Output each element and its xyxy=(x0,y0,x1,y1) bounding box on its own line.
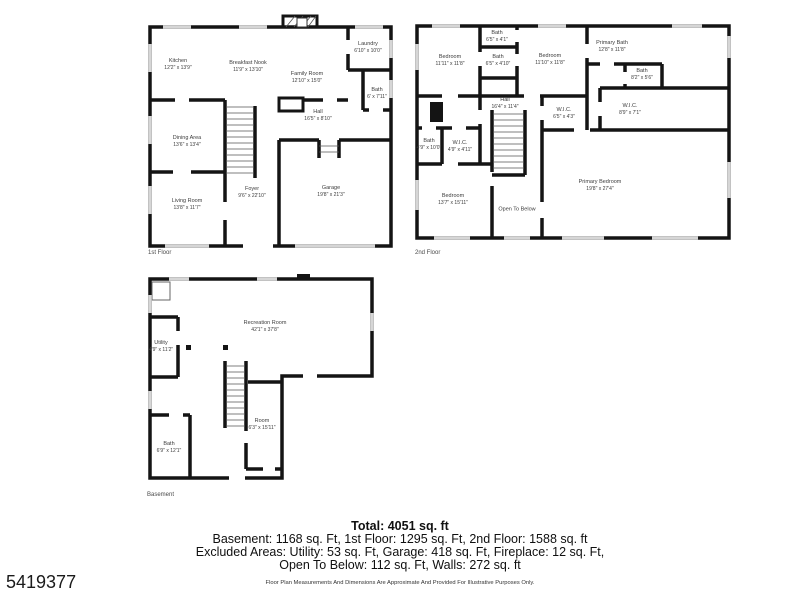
room-label-bath-right: Bath 8'2" x 5'6" xyxy=(631,68,653,82)
room-label-family-room: Family Room 12'10" x 15'0" xyxy=(291,71,323,85)
room-label-bath-basement: Bath 6'9" x 12'1" xyxy=(157,441,182,455)
second-floor-plan: Bedroom 11'11" x 11'8" Bath 6'5" x 4'1" … xyxy=(412,14,734,260)
room-label-recreation-room: Recreation Room 42'1" x 37'8" xyxy=(244,320,287,334)
room-label-garage: Garage 19'8" x 21'3" xyxy=(317,185,344,199)
room-label-foyer: Foyer 9'6" x 22'10" xyxy=(238,186,265,200)
basement-plan: Recreation Room 42'1" x 37'8" Utility 4'… xyxy=(145,273,393,501)
excluded-areas-line-2: Open To Below: 112 sq. Ft, Walls: 272 sq… xyxy=(0,559,800,572)
area-summary: Total: 4051 sq. ft Basement: 1168 sq. Ft… xyxy=(0,520,800,586)
room-label-open-to-below: Open To Below xyxy=(498,206,535,213)
room-label-laundry: Laundry 6'10" x 10'0" xyxy=(354,41,381,55)
second-floor-tag: 2nd Floor xyxy=(415,250,440,256)
room-label-room: Room 6'3" x 15'11" xyxy=(248,418,275,432)
room-label-bedroom-top-mid: Bedroom 11'10" x 11'8" xyxy=(535,53,564,67)
first-floor-tag: 1st Floor xyxy=(148,250,171,256)
room-label-hall-2nd: Hall 16'4" x 11'4" xyxy=(491,97,518,111)
basement-walls xyxy=(145,273,393,501)
room-label-kitchen: Kitchen 12'2" x 13'9" xyxy=(164,58,191,72)
floor-plan-page: Kitchen 12'2" x 13'9" Breakfast Nook 11'… xyxy=(0,0,800,600)
room-label-wic-left: W.I.C. 4'9" x 4'11" xyxy=(448,140,472,154)
room-label-living-room: Living Room 13'8" x 11'7" xyxy=(172,198,203,212)
basement-floor-tag: Basement xyxy=(147,492,174,498)
room-label-bath-left: Bath 4'9" x 10'0" xyxy=(417,138,442,152)
room-label-dining-area: Dining Area 13'6" x 13'4" xyxy=(173,135,201,149)
room-label-bath-top: Bath 6'5" x 4'1" xyxy=(486,30,508,44)
second-floor-walls xyxy=(412,14,734,260)
room-label-bedroom-top-left: Bedroom 11'11" x 11'8" xyxy=(435,54,464,68)
listing-id: 5419377 xyxy=(6,572,76,593)
first-floor-plan: Kitchen 12'2" x 13'9" Breakfast Nook 11'… xyxy=(145,10,397,262)
room-label-primary-bedroom: Primary Bedroom 19'8" x 27'4" xyxy=(579,179,622,193)
room-label-wic-small: W.I.C. 6'5" x 4'3" xyxy=(553,107,575,121)
room-label-bath-1st: Bath 6' x 7'11" xyxy=(367,87,387,101)
disclaimer-text: Floor Plan Measurements And Dimensions A… xyxy=(0,580,800,586)
room-label-primary-bath: Primary Bath 12'8" x 11'8" xyxy=(596,40,628,54)
room-label-breakfast-nook: Breakfast Nook 11'9" x 13'10" xyxy=(229,60,267,74)
room-label-bath-mid: Bath 6'5" x 4'10" xyxy=(486,54,511,68)
room-label-hall-1st: Hall 16'5" x 8'10" xyxy=(304,109,331,123)
room-label-bedroom-lower-left: Bedroom 13'7" x 15'11" xyxy=(438,193,468,207)
room-label-wic-large: W.I.C. 8'9" x 7'1" xyxy=(619,103,641,117)
room-label-utility: Utility 4'9" x 11'2" xyxy=(149,340,173,354)
